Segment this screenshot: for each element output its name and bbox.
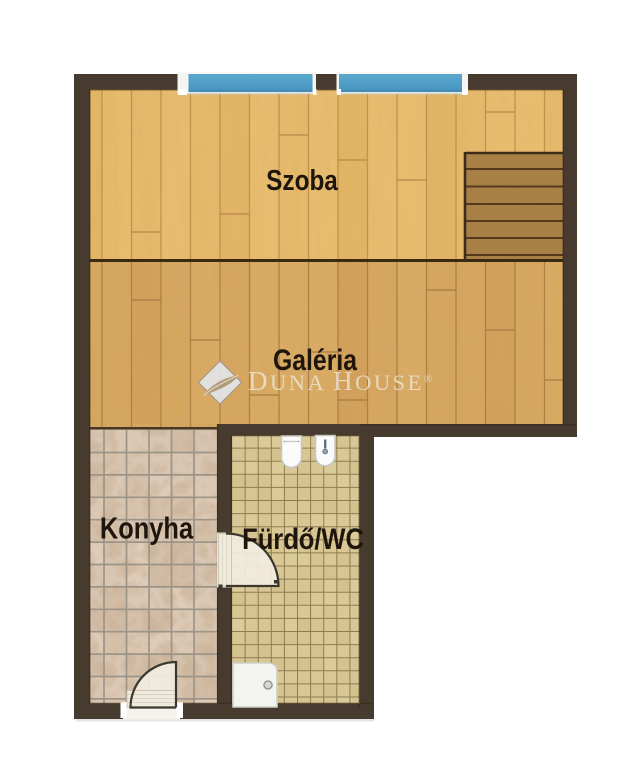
svg-text:Galéria: Galéria: [273, 343, 358, 377]
svg-text:Szoba: Szoba: [266, 164, 339, 196]
svg-text:Konyha: Konyha: [100, 511, 193, 546]
svg-text:Fürdő/WC: Fürdő/WC: [242, 522, 364, 555]
